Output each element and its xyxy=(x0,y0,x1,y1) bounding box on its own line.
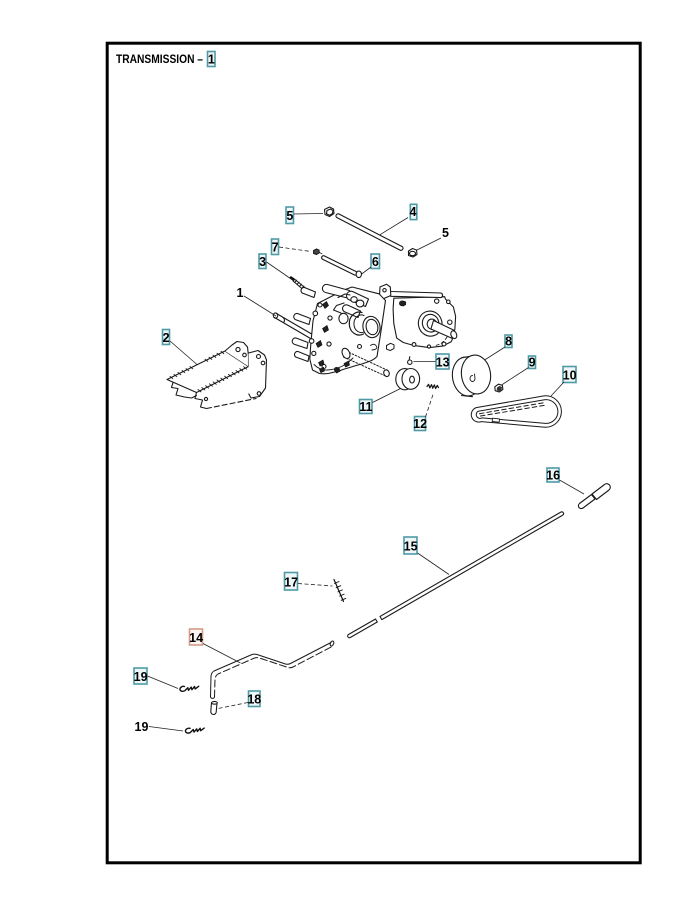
svg-text:5: 5 xyxy=(442,226,449,240)
svg-text:1: 1 xyxy=(208,53,215,67)
svg-text:17: 17 xyxy=(284,575,298,589)
svg-text:9: 9 xyxy=(529,356,536,370)
svg-text:3: 3 xyxy=(259,255,266,269)
svg-text:11: 11 xyxy=(359,400,372,414)
svg-text:6: 6 xyxy=(372,255,379,269)
svg-text:4: 4 xyxy=(410,205,417,219)
svg-text:15: 15 xyxy=(404,540,418,554)
svg-text:12: 12 xyxy=(413,417,427,431)
svg-text:8: 8 xyxy=(505,335,512,349)
svg-text:18: 18 xyxy=(247,693,261,707)
svg-text:TRANSMISSION –: TRANSMISSION – xyxy=(116,52,203,66)
svg-text:7: 7 xyxy=(272,240,279,254)
svg-text:19: 19 xyxy=(134,670,148,684)
svg-text:1: 1 xyxy=(237,286,244,300)
svg-text:2: 2 xyxy=(163,331,170,345)
svg-text:13: 13 xyxy=(436,355,450,369)
svg-text:10: 10 xyxy=(563,368,577,382)
svg-text:14: 14 xyxy=(189,631,203,645)
svg-text:19: 19 xyxy=(135,720,149,734)
svg-text:16: 16 xyxy=(546,469,560,483)
svg-text:5: 5 xyxy=(286,209,293,223)
